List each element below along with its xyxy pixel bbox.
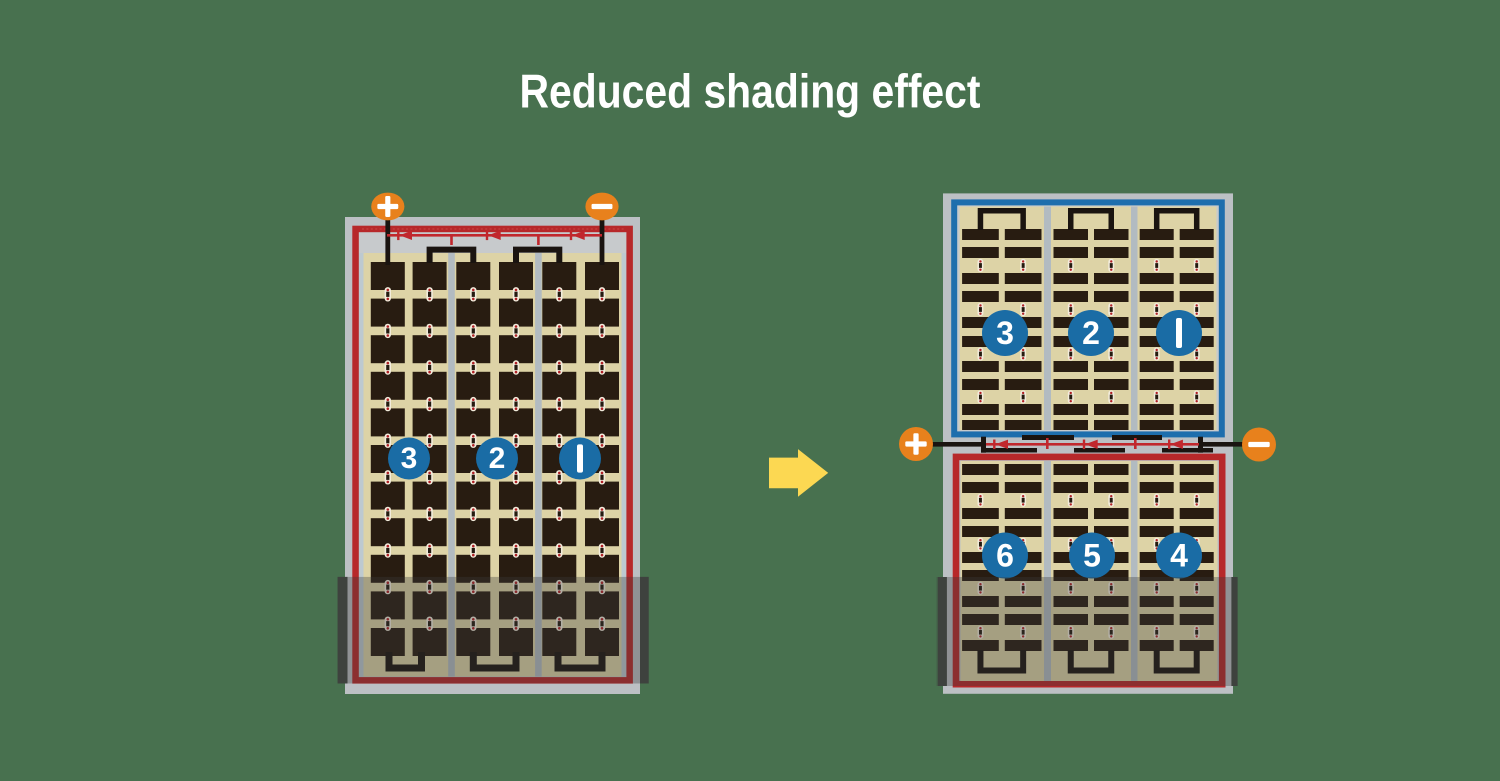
svg-text:2: 2 — [1082, 315, 1100, 351]
svg-text:4: 4 — [1170, 538, 1188, 574]
svg-text:Reduced shading effect: Reduced shading effect — [520, 65, 981, 118]
svg-text:3: 3 — [996, 315, 1014, 351]
svg-text:5: 5 — [1083, 538, 1101, 574]
svg-text:2: 2 — [489, 442, 506, 475]
svg-text:6: 6 — [996, 538, 1014, 574]
svg-text:3: 3 — [401, 442, 418, 475]
